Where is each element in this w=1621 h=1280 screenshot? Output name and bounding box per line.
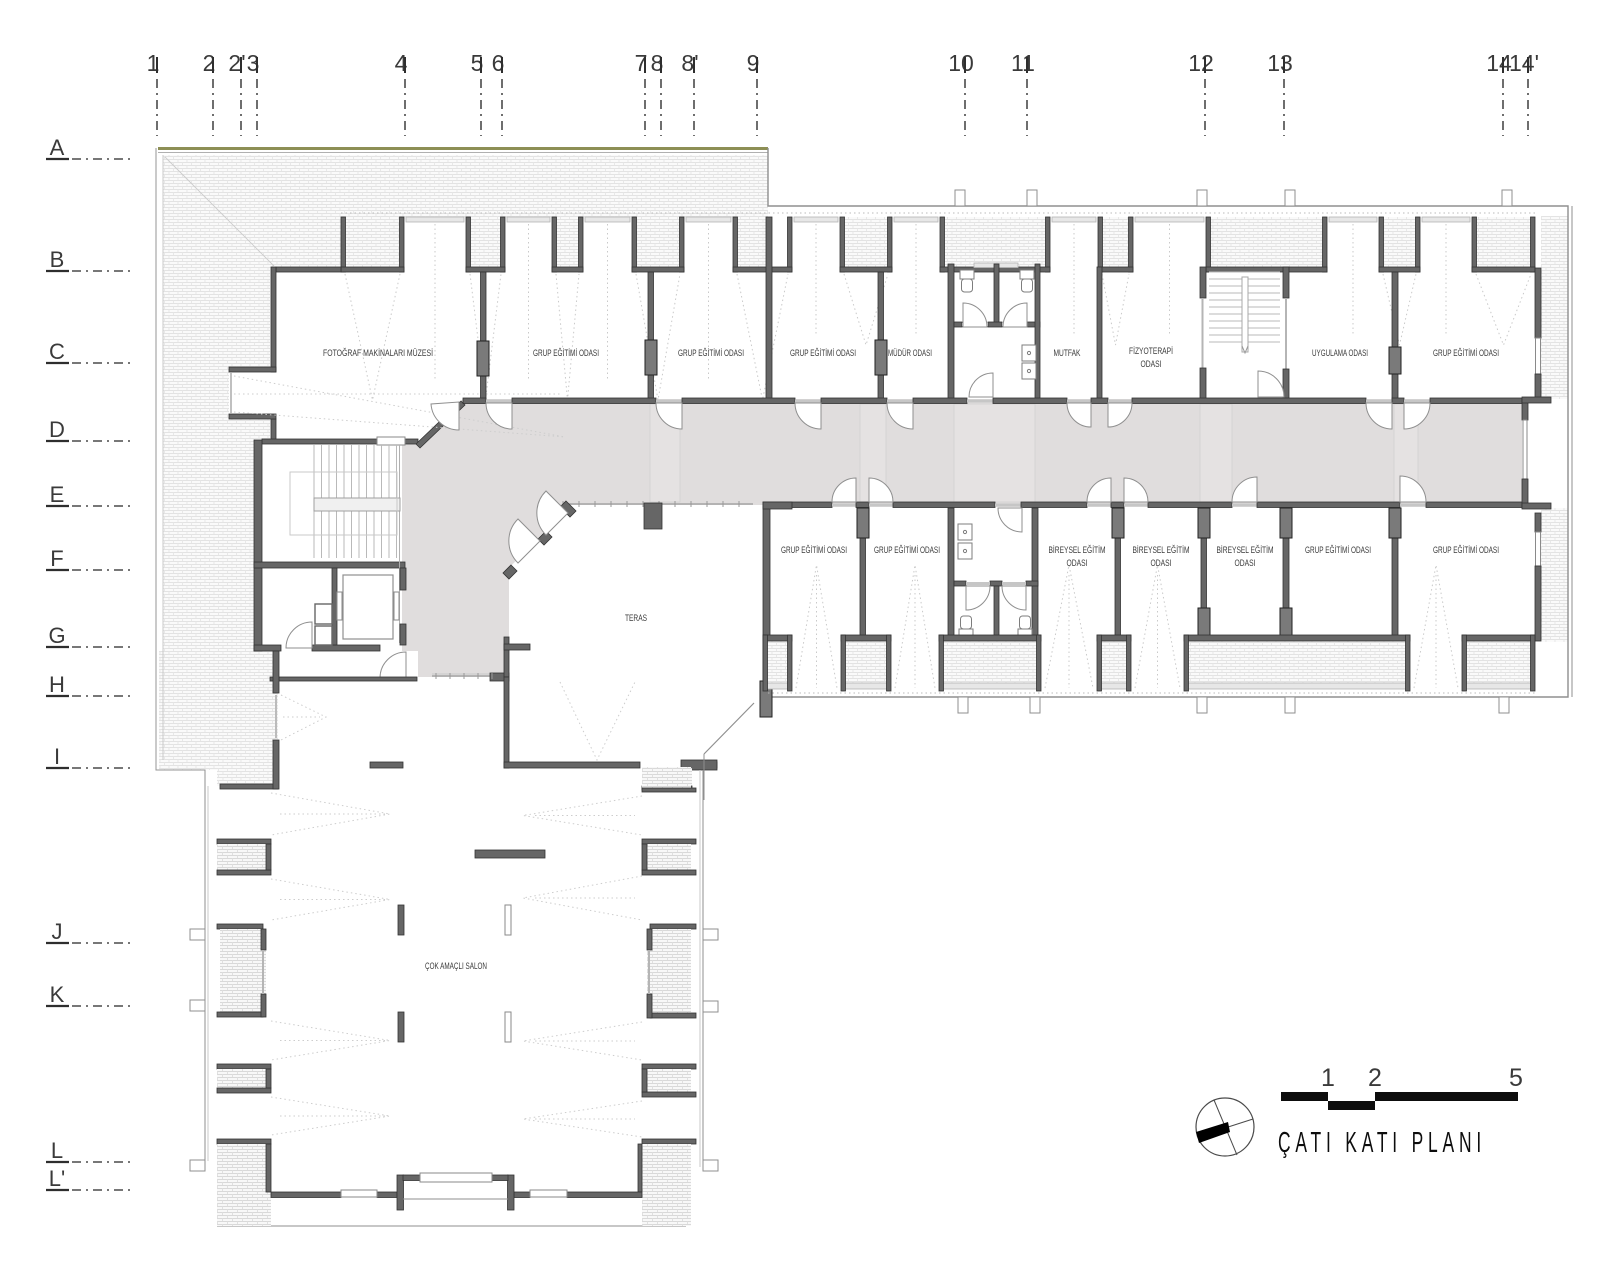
svg-text:GRUP EĞİTİMİ ODASI: GRUP EĞİTİMİ ODASI xyxy=(1305,545,1371,556)
svg-text:2': 2' xyxy=(228,50,245,76)
svg-text:BİREYSEL EĞİTİM: BİREYSEL EĞİTİM xyxy=(1133,545,1190,556)
svg-text:2: 2 xyxy=(1368,1064,1382,1092)
svg-text:ÇOK AMAÇLI SALON: ÇOK AMAÇLI SALON xyxy=(425,961,487,972)
svg-text:ODASI: ODASI xyxy=(1141,359,1162,370)
svg-text:GRUP EĞİTİMİ ODASI: GRUP EĞİTİMİ ODASI xyxy=(874,545,940,556)
svg-text:FOTOĞRAF MAKİNALARI MÜZESİ: FOTOĞRAF MAKİNALARI MÜZESİ xyxy=(323,348,433,359)
svg-text:MÜDÜR ODASI: MÜDÜR ODASI xyxy=(888,348,932,359)
svg-text:GRUP EĞİTİMİ ODASI: GRUP EĞİTİMİ ODASI xyxy=(1433,545,1499,556)
svg-text:GRUP EĞİTİMİ ODASI: GRUP EĞİTİMİ ODASI xyxy=(1433,348,1499,359)
svg-text:11: 11 xyxy=(1011,50,1035,76)
svg-text:E: E xyxy=(50,482,65,507)
svg-text:A: A xyxy=(50,135,65,160)
svg-text:L: L xyxy=(51,1138,63,1163)
svg-text:ODASI: ODASI xyxy=(1067,558,1088,569)
svg-text:ODASI: ODASI xyxy=(1151,558,1172,569)
svg-text:13: 13 xyxy=(1267,50,1293,76)
svg-text:B: B xyxy=(50,247,65,272)
svg-text:H: H xyxy=(49,672,65,697)
svg-text:K: K xyxy=(50,982,65,1007)
svg-text:GRUP EĞİTİMİ ODASI: GRUP EĞİTİMİ ODASI xyxy=(678,348,744,359)
svg-text:14': 14' xyxy=(1509,50,1539,76)
svg-text:GRUP EĞİTİMİ ODASI: GRUP EĞİTİMİ ODASI xyxy=(533,348,599,359)
svg-text:D: D xyxy=(49,417,65,442)
svg-text:GRUP EĞİTİMİ ODASI: GRUP EĞİTİMİ ODASI xyxy=(781,545,847,556)
svg-text:TERAS: TERAS xyxy=(625,613,647,624)
svg-text:BİREYSEL EĞİTİM: BİREYSEL EĞİTİM xyxy=(1049,545,1106,556)
svg-text:ÇATI KATI PLANI: ÇATI KATI PLANI xyxy=(1278,1127,1486,1159)
svg-text:8': 8' xyxy=(681,50,698,76)
svg-text:I: I xyxy=(54,744,60,769)
svg-text:5: 5 xyxy=(1509,1064,1523,1092)
svg-text:L': L' xyxy=(49,1166,65,1191)
svg-text:10: 10 xyxy=(948,50,974,76)
svg-text:G: G xyxy=(48,623,65,648)
svg-text:MUTFAK: MUTFAK xyxy=(1054,348,1081,359)
svg-text:UYGULAMA ODASI: UYGULAMA ODASI xyxy=(1312,348,1368,359)
svg-text:FİZYOTERAPİ: FİZYOTERAPİ xyxy=(1129,346,1173,357)
svg-text:1: 1 xyxy=(1321,1064,1335,1092)
svg-text:F: F xyxy=(50,546,63,571)
svg-text:C: C xyxy=(49,339,65,364)
svg-text:J: J xyxy=(52,919,63,944)
svg-text:GRUP EĞİTİMİ ODASI: GRUP EĞİTİMİ ODASI xyxy=(790,348,856,359)
svg-text:BİREYSEL EĞİTİM: BİREYSEL EĞİTİM xyxy=(1217,545,1274,556)
svg-text:ODASI: ODASI xyxy=(1235,558,1256,569)
svg-text:12: 12 xyxy=(1188,50,1214,76)
